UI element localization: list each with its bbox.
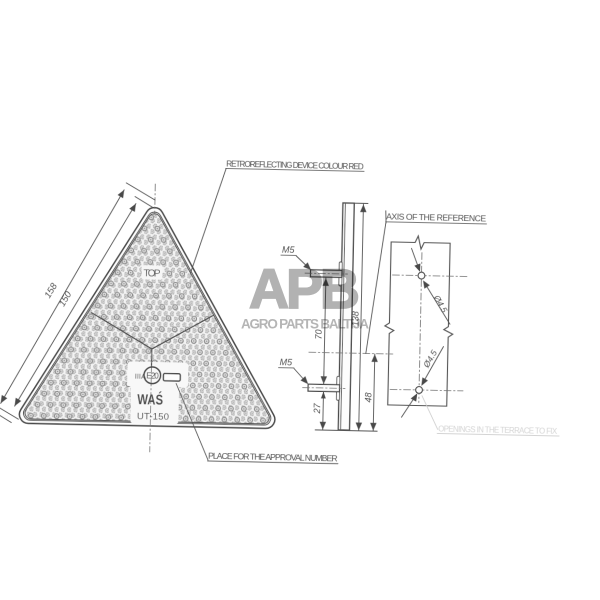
svg-text:APB: APB [249, 258, 363, 320]
svg-text:RETROREFLECTING DEVICE COLOUR: RETROREFLECTING DEVICE COLOUR RED [226, 159, 364, 171]
svg-text:158: 158 [43, 281, 60, 300]
svg-text:UT-150: UT-150 [137, 411, 169, 423]
svg-text:TOP: TOP [143, 268, 161, 279]
svg-text:27: 27 [312, 402, 322, 414]
svg-text:48: 48 [363, 392, 373, 402]
svg-text:150: 150 [57, 289, 74, 308]
svg-text:OPENINGS IN THE TERRACE TO FIX: OPENINGS IN THE TERRACE TO FIX [438, 424, 558, 436]
svg-text:M5: M5 [282, 245, 296, 255]
svg-text:Ø4.5: Ø4.5 [431, 293, 449, 315]
svg-text:E20: E20 [146, 371, 159, 380]
svg-text:AGRO PARTS BALTIJA: AGRO PARTS BALTIJA [241, 317, 369, 332]
svg-text:WAŚ: WAŚ [137, 391, 163, 408]
svg-text:M5: M5 [280, 357, 294, 367]
